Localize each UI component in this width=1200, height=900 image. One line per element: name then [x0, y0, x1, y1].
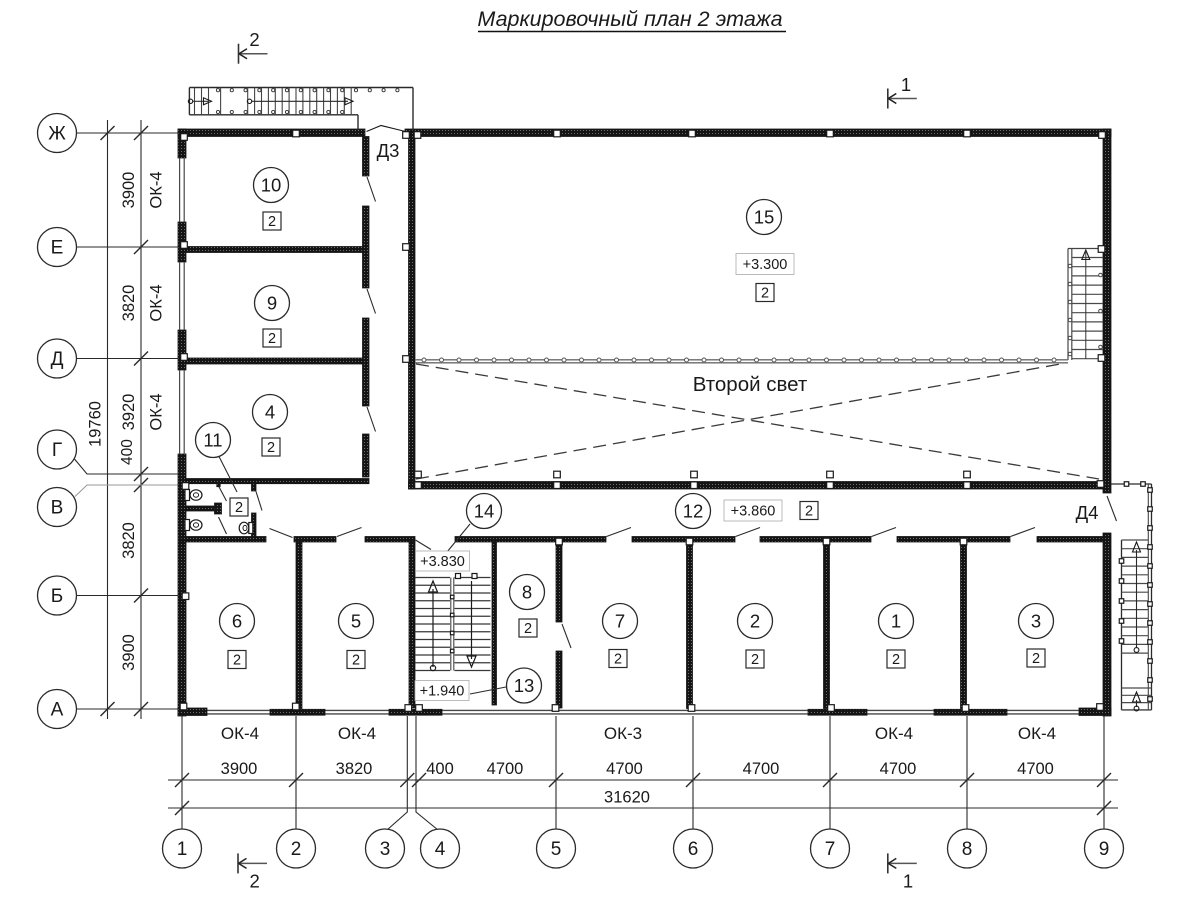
svg-text:4700: 4700	[743, 760, 780, 778]
svg-text:19760: 19760	[87, 401, 105, 447]
svg-text:4: 4	[265, 401, 275, 422]
svg-text:1: 1	[891, 610, 901, 631]
svg-text:7: 7	[825, 839, 836, 860]
svg-text:1: 1	[903, 871, 913, 892]
svg-text:2: 2	[250, 871, 260, 892]
svg-text:2: 2	[233, 653, 241, 669]
svg-text:10: 10	[261, 174, 282, 195]
svg-text:ОК-4: ОК-4	[148, 393, 166, 430]
svg-text:Б: Б	[51, 586, 63, 607]
svg-text:3820: 3820	[336, 760, 373, 778]
svg-text:4700: 4700	[1017, 760, 1054, 778]
svg-text:ОК-4: ОК-4	[875, 724, 913, 743]
svg-text:6: 6	[232, 610, 242, 631]
svg-text:3: 3	[380, 839, 391, 860]
svg-text:Д: Д	[51, 349, 64, 370]
svg-text:1: 1	[901, 74, 911, 95]
svg-text:5: 5	[351, 610, 361, 631]
svg-text:Г: Г	[52, 440, 62, 461]
svg-text:Ж: Ж	[48, 124, 66, 145]
svg-text:2: 2	[235, 500, 243, 516]
svg-text:4700: 4700	[606, 760, 643, 778]
svg-text:2: 2	[268, 331, 276, 347]
svg-text:2: 2	[750, 610, 760, 631]
svg-text:ОК-4: ОК-4	[221, 724, 259, 743]
svg-text:3: 3	[1031, 610, 1041, 631]
svg-text:2: 2	[291, 839, 302, 860]
svg-text:2: 2	[352, 653, 360, 669]
svg-text:В: В	[51, 498, 64, 519]
svg-text:3900: 3900	[221, 760, 258, 778]
svg-text:4700: 4700	[487, 760, 524, 778]
svg-text:13: 13	[514, 675, 535, 696]
svg-text:ОК-4: ОК-4	[338, 724, 376, 743]
svg-text:2: 2	[614, 652, 622, 668]
svg-text:8: 8	[522, 581, 532, 602]
svg-text:8: 8	[962, 839, 973, 860]
svg-text:ОК-4: ОК-4	[1018, 724, 1056, 743]
svg-text:7: 7	[615, 610, 625, 631]
svg-text:ОК-3: ОК-3	[604, 724, 642, 743]
svg-text:2: 2	[268, 214, 276, 230]
svg-text:Е: Е	[51, 238, 64, 259]
svg-text:400: 400	[426, 760, 454, 778]
svg-text:14: 14	[474, 500, 495, 521]
svg-text:2: 2	[892, 652, 900, 668]
svg-text:2: 2	[524, 621, 532, 637]
svg-text:4: 4	[435, 839, 446, 860]
svg-text:9: 9	[267, 292, 277, 313]
svg-text:Второй свет: Второй свет	[693, 373, 808, 396]
svg-text:2: 2	[249, 29, 259, 50]
svg-text:11: 11	[203, 429, 222, 450]
svg-text:15: 15	[754, 206, 775, 227]
svg-text:Маркировочный план 2 этажа: Маркировочный план 2 этажа	[477, 7, 782, 31]
svg-text:1: 1	[177, 839, 188, 860]
svg-text:+3.300: +3.300	[743, 257, 788, 273]
svg-text:+1.940: +1.940	[420, 684, 465, 700]
svg-text:9: 9	[1099, 839, 1110, 860]
svg-text:+3.860: +3.860	[731, 504, 776, 520]
svg-text:ОК-4: ОК-4	[148, 171, 166, 208]
svg-text:Д4: Д4	[1076, 502, 1099, 523]
svg-text:5: 5	[551, 839, 562, 860]
svg-text:3900: 3900	[120, 172, 138, 209]
svg-text:3920: 3920	[120, 394, 138, 431]
svg-text:2: 2	[267, 440, 275, 456]
svg-text:+3.830: +3.830	[420, 554, 465, 570]
svg-text:4700: 4700	[880, 760, 917, 778]
svg-text:Д3: Д3	[377, 140, 400, 161]
svg-text:2: 2	[761, 286, 769, 302]
svg-text:2: 2	[1032, 651, 1040, 667]
svg-text:2: 2	[751, 652, 759, 668]
svg-text:31620: 31620	[604, 789, 650, 807]
svg-text:3820: 3820	[120, 522, 138, 559]
svg-text:12: 12	[683, 500, 704, 521]
svg-text:3900: 3900	[120, 634, 138, 671]
svg-text:А: А	[51, 700, 64, 721]
svg-text:3820: 3820	[120, 285, 138, 322]
svg-text:6: 6	[688, 839, 699, 860]
svg-text:400: 400	[119, 439, 136, 465]
svg-text:ОК-4: ОК-4	[148, 284, 166, 321]
svg-text:2: 2	[805, 504, 813, 520]
